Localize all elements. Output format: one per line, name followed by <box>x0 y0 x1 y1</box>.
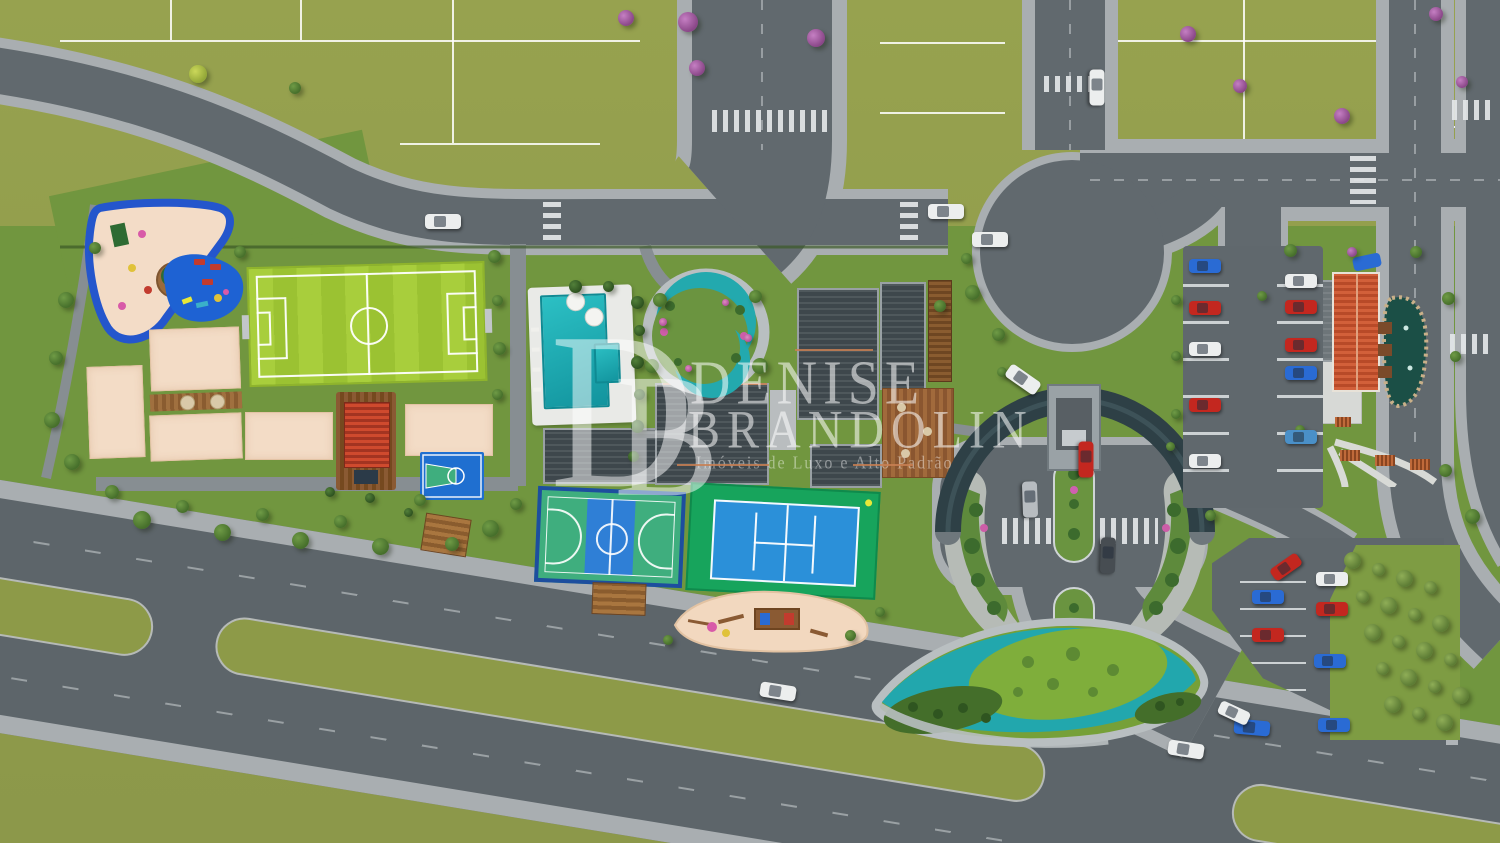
car <box>1189 342 1221 356</box>
tennis-center-line <box>754 541 814 546</box>
orchard-tree <box>1344 552 1361 569</box>
tree <box>992 328 1005 341</box>
tree <box>752 358 768 374</box>
pool-blue-feature <box>1352 252 1382 272</box>
tree <box>1284 244 1297 257</box>
orchard-tree <box>1452 687 1469 704</box>
car <box>1100 537 1116 574</box>
half-basketball-court <box>420 452 484 500</box>
sun-lounger <box>532 347 540 351</box>
tree <box>492 295 503 306</box>
purple-tree <box>1456 76 1468 88</box>
purple-tree <box>618 10 634 26</box>
tree <box>845 630 856 641</box>
orchard-tree <box>1364 624 1381 641</box>
tree <box>365 493 375 503</box>
wooden-bleacher <box>591 582 646 616</box>
orchard-tree <box>1424 581 1437 594</box>
bench <box>1335 417 1351 427</box>
terrace-table <box>897 403 906 412</box>
goal-left <box>242 315 250 339</box>
car <box>1285 366 1317 380</box>
tree <box>414 494 426 506</box>
goal-right <box>485 309 493 333</box>
flower-bush <box>685 365 692 372</box>
tree <box>58 292 74 308</box>
crosswalk <box>1452 100 1490 120</box>
bench <box>1340 450 1360 461</box>
tree <box>1205 510 1216 521</box>
bench <box>1410 459 1430 470</box>
orchard-tree <box>1380 597 1397 614</box>
orchard-tree <box>1396 570 1413 587</box>
pergola <box>928 280 952 382</box>
masterplan-render: D B DENISE BRANDOLIN Imóveis de Luxo e A… <box>0 0 1500 843</box>
tree <box>482 520 499 537</box>
car <box>1285 274 1317 288</box>
crosswalk <box>1350 156 1376 204</box>
tree <box>631 296 644 309</box>
orchard-tree <box>1408 608 1421 621</box>
flower-bush <box>744 334 752 342</box>
tree <box>875 607 885 617</box>
tree <box>1171 351 1181 361</box>
tree <box>404 508 413 517</box>
tree <box>1171 295 1181 305</box>
orchard-tree <box>1428 680 1441 693</box>
car <box>1314 654 1346 668</box>
tree <box>961 253 972 264</box>
tree <box>133 511 151 529</box>
car <box>1022 481 1038 518</box>
building-orange-roof <box>1332 272 1380 392</box>
orchard-tree <box>1412 707 1425 720</box>
car <box>1285 338 1317 352</box>
orchard-tree <box>1444 653 1457 666</box>
tree <box>488 250 501 263</box>
purple-tree <box>1347 247 1357 257</box>
beach-court <box>245 412 333 460</box>
tree <box>634 389 645 400</box>
tree <box>256 508 269 521</box>
crosswalk <box>900 202 918 246</box>
tree <box>1465 509 1480 524</box>
ornamental-circle-garden <box>640 266 772 398</box>
beach-court <box>149 326 241 391</box>
clubhouse-roof <box>810 444 882 488</box>
flower-bush <box>722 299 729 306</box>
terrace-table <box>901 449 910 458</box>
bench <box>1375 455 1395 466</box>
tree <box>105 485 119 499</box>
tree <box>234 246 246 258</box>
soccer-field <box>246 261 487 387</box>
tree <box>492 389 503 400</box>
rubber-play-pad <box>152 246 252 330</box>
orchard-tree <box>1376 662 1389 675</box>
car <box>1318 718 1350 732</box>
tree <box>1439 464 1452 477</box>
orchard-tree <box>1436 714 1453 731</box>
purple-tree <box>689 60 705 76</box>
pavilion-roof <box>344 402 390 468</box>
umbrella <box>210 394 226 410</box>
sun-lounger <box>531 327 539 331</box>
tree <box>372 538 389 555</box>
purple-tree <box>807 29 825 47</box>
tree <box>445 537 459 551</box>
goal-box-left <box>257 312 272 346</box>
tree <box>1171 409 1181 419</box>
orchard-tree <box>1356 590 1369 603</box>
ornamental-pond <box>1376 288 1438 414</box>
beach-court <box>86 365 145 459</box>
kids-sand-playground <box>660 583 885 657</box>
orchard-tree <box>1400 669 1417 686</box>
clubhouse-roof <box>797 288 879 420</box>
car <box>928 204 964 219</box>
copper-trim <box>795 349 873 351</box>
tree <box>289 82 301 94</box>
patio <box>770 390 796 450</box>
crosswalk <box>712 110 830 132</box>
car <box>1189 398 1221 412</box>
tree <box>1166 442 1175 451</box>
car <box>1090 70 1105 106</box>
orchard-tree <box>1372 563 1385 576</box>
wooden-bleacher <box>420 513 471 558</box>
purple-tree <box>1429 7 1443 21</box>
tennis-inner-court <box>710 499 860 587</box>
tree <box>634 325 645 336</box>
tree <box>603 281 614 292</box>
tree <box>1450 351 1461 362</box>
tree <box>510 498 522 510</box>
deck-lounge <box>150 391 243 411</box>
beach-court <box>405 404 493 456</box>
tree <box>1257 291 1267 301</box>
roof-ridge <box>1356 274 1358 390</box>
tree <box>653 293 667 307</box>
tree <box>189 65 207 83</box>
car <box>1252 628 1284 642</box>
car <box>1252 590 1284 604</box>
tree <box>628 451 639 462</box>
purple-tree <box>1334 108 1350 124</box>
tree <box>749 290 762 303</box>
tree <box>49 351 63 365</box>
tree <box>663 635 673 645</box>
tree <box>176 500 189 513</box>
tree <box>89 242 101 254</box>
purple-tree <box>678 12 698 32</box>
beach-court <box>149 412 243 461</box>
orchard-tree <box>1416 642 1433 659</box>
purple-tree <box>1180 26 1196 42</box>
car <box>1079 442 1094 478</box>
crosswalk <box>543 202 561 246</box>
car <box>1316 572 1348 586</box>
tree <box>292 532 309 549</box>
tree <box>934 300 946 312</box>
flower-bush <box>659 318 667 326</box>
tree <box>1410 246 1422 258</box>
multisport-court <box>534 486 686 588</box>
umbrella <box>180 395 196 411</box>
red-roof-pavilion <box>336 392 396 490</box>
orchard-tree <box>1384 696 1401 713</box>
tree <box>64 454 80 470</box>
tree <box>569 280 582 293</box>
tree <box>965 285 980 300</box>
tree <box>334 515 347 528</box>
tree <box>214 524 231 541</box>
car <box>1189 454 1221 468</box>
car <box>1189 301 1221 315</box>
tree <box>493 342 506 355</box>
tree <box>631 356 644 369</box>
orchard-tree <box>1392 635 1405 648</box>
tree <box>44 412 60 428</box>
pavilion-annex-roof <box>354 470 378 484</box>
car <box>425 214 461 229</box>
crosswalk <box>1044 76 1096 92</box>
tennis-ball <box>865 499 872 506</box>
car <box>1285 430 1317 444</box>
car <box>1189 259 1221 273</box>
tree <box>325 487 335 497</box>
goal-box-right <box>463 306 478 340</box>
car <box>1316 602 1348 616</box>
water-swirl-garden <box>868 612 1213 752</box>
orchard-tree <box>1432 615 1449 632</box>
car <box>1285 300 1317 314</box>
tree <box>645 359 659 373</box>
tree <box>1442 292 1455 305</box>
car <box>972 232 1008 247</box>
tree <box>631 420 644 433</box>
purple-tree <box>1233 79 1247 93</box>
clubhouse-roof <box>655 383 769 485</box>
